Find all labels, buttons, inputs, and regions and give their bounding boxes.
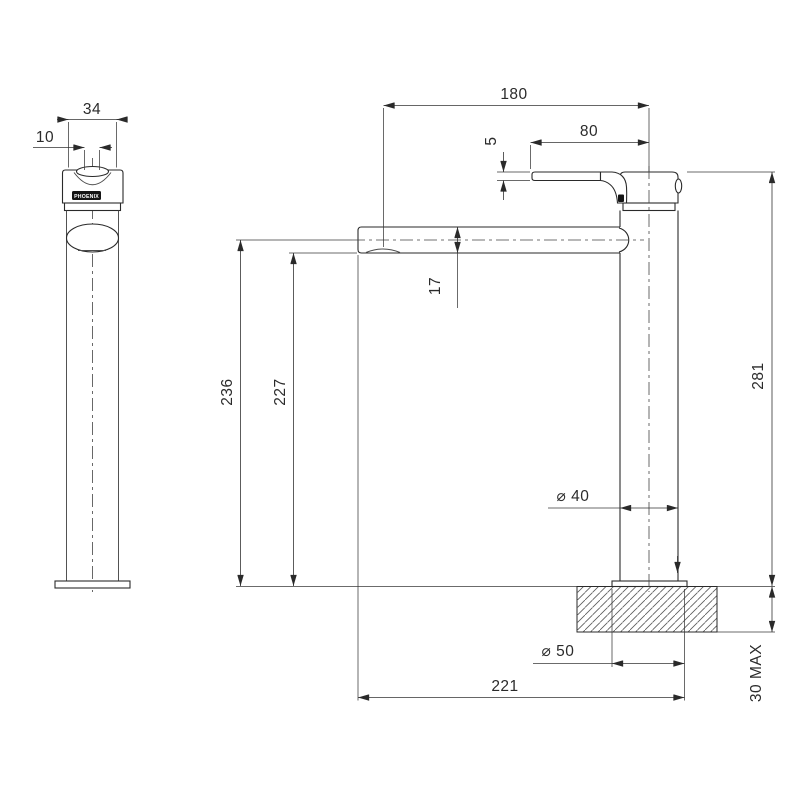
dim-head-width: 34: [57, 101, 128, 168]
dim-depth-221: 221: [358, 255, 685, 701]
side-indicator-button: [675, 179, 681, 193]
dim-text-227: 227: [272, 378, 289, 405]
dim-height-281: 281: [687, 172, 775, 586]
front-base-plate: [55, 581, 130, 588]
dim-height-227: 227: [272, 253, 357, 586]
side-brand-mark: [618, 195, 624, 203]
dim-text-221: 221: [491, 678, 518, 695]
dim-text-10: 10: [36, 129, 54, 146]
front-spout-outlet: [67, 224, 119, 252]
technical-drawing-page: PHOENIX 34 10: [0, 0, 800, 800]
side-base-flange: [612, 581, 687, 587]
dim-text-d50: ⌀ 50: [542, 643, 575, 660]
dim-reach-180: 180: [384, 86, 650, 247]
dim-lever-thickness-5: 5: [483, 136, 530, 200]
front-collar: [65, 203, 121, 211]
dim-text-80: 80: [580, 123, 598, 140]
dim-bench-30max: 30 MAX: [748, 587, 772, 703]
side-lever-bar: [532, 172, 601, 181]
dim-text-d40: ⌀ 40: [557, 488, 590, 505]
bench-section-hatch: [577, 587, 717, 633]
tap-dimension-drawing: PHOENIX 34 10: [0, 0, 800, 800]
dim-text-34: 34: [83, 101, 101, 118]
dim-text-17: 17: [427, 277, 444, 295]
side-view: 180 80 5 17 236: [219, 86, 775, 702]
front-lever-tip: [77, 167, 109, 177]
dim-text-30max: 30 MAX: [748, 644, 765, 702]
ext-lines: [497, 172, 530, 181]
dim-text-5: 5: [483, 136, 500, 145]
dim-body-diameter-40: ⌀ 40: [548, 488, 678, 508]
dim-text-281: 281: [750, 362, 767, 389]
dim-text-236: 236: [219, 378, 236, 405]
dim-height-236: 236: [219, 240, 352, 586]
dim-text-180: 180: [500, 86, 527, 103]
dim-lever-width: 10: [33, 129, 112, 170]
brand-logo-text: PHOENIX: [74, 194, 99, 200]
dim-lever-80: 80: [531, 123, 650, 169]
front-view: PHOENIX 34 10: [33, 101, 130, 592]
